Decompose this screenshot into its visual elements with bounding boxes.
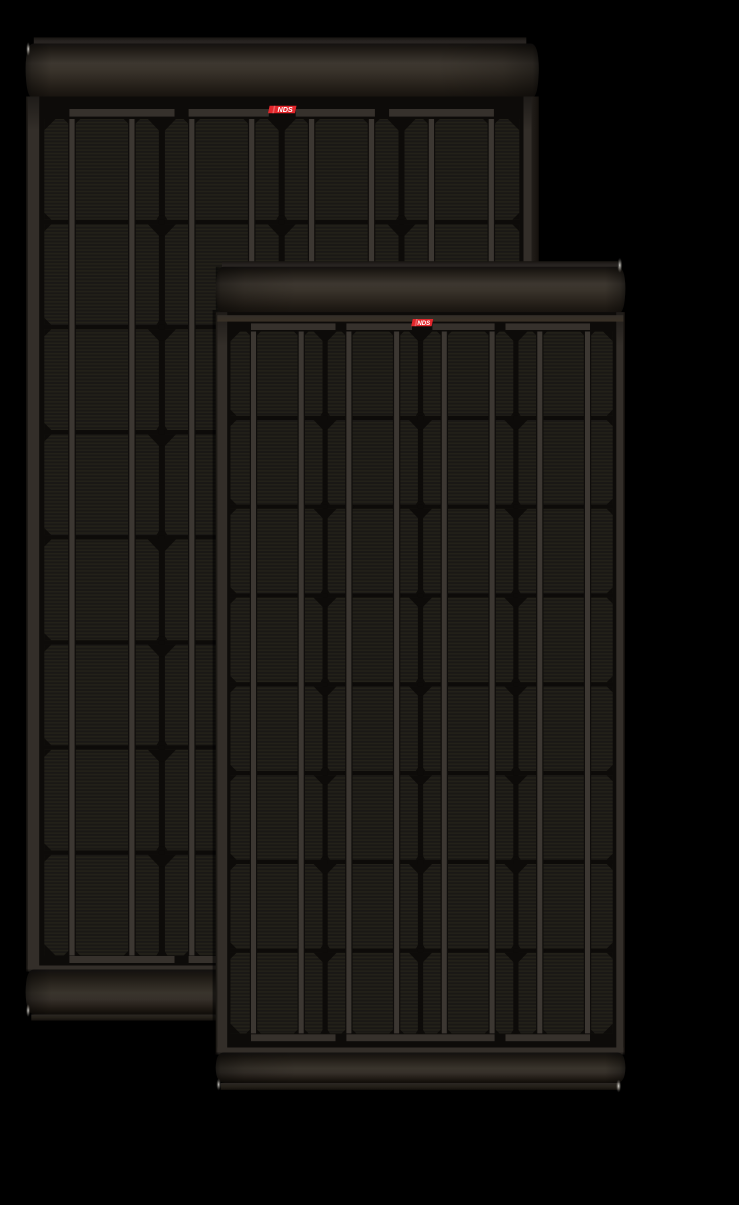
svg-text:NDS: NDS xyxy=(417,320,430,327)
svg-text:NDS: NDS xyxy=(278,105,293,114)
